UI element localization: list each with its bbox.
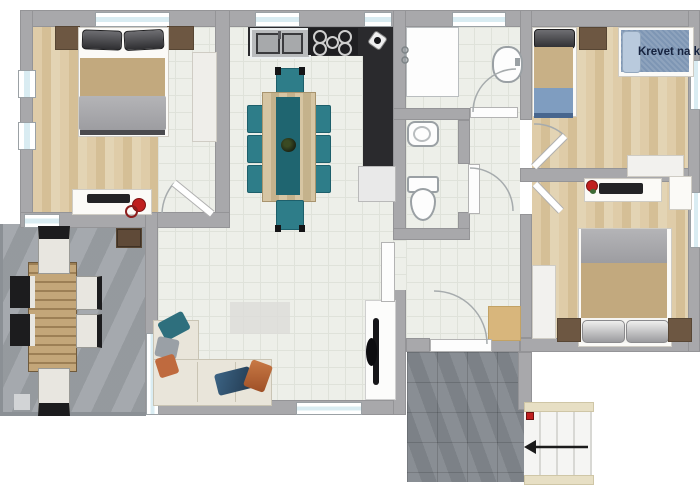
tv-screen-bulge [366,338,377,366]
terrace-chair-bottom [38,368,70,416]
wall-bathroom-bottom [393,108,470,120]
wall-wc-right-upper [458,120,470,164]
headboard-shelf-left [55,26,80,50]
washbasin-faucet [515,58,520,66]
rug [230,302,290,334]
terrace-cabinet [116,228,142,248]
entry-door [430,339,492,352]
living-hall-door [381,242,395,302]
bed3-throw [581,229,667,263]
wardrobe-bedroom1 [192,52,217,142]
fridge-cabinet [358,166,396,202]
wc-door [468,164,480,214]
laptop-bedroom3 [599,183,643,194]
bed1-footboard [80,130,165,135]
window-top-1 [95,12,170,27]
bed3-pillow-left [582,320,625,343]
bidet [407,121,439,147]
window-left-2 [18,122,36,150]
bathroom-door [470,107,518,118]
bed3-pillow-right [626,320,669,343]
closet-bedroom3 [532,265,556,339]
burner-5 [326,36,339,49]
armrest-left [275,67,281,75]
desk-chair-ring [125,205,138,218]
floor-plan-image: Krevet na kat [0,0,700,500]
wall-wc-bottom [393,228,470,240]
window-top-2 [255,12,300,27]
kitchen-sink [250,28,311,59]
terrace-chair-left-1 [10,276,35,308]
stairs [524,402,592,483]
doormat [488,306,521,341]
chair-leg-left [275,225,281,232]
terrace-edge-left [0,224,3,414]
bunk-bed-label: Krevet na kat [638,46,700,61]
bed1-pillow-left [82,29,123,50]
sofa-seat-line [197,362,198,402]
wall-entry-left [406,338,430,352]
plant-centerpiece [281,138,296,152]
nightstand-b3-left [557,318,581,342]
wall-left [20,10,33,228]
bed1-throw [79,96,166,130]
nightstand-b3-right [668,318,692,342]
bed1-blanket [80,58,165,98]
burner-2 [313,42,327,56]
laptop-bedroom1 [87,194,130,203]
bed1-pillow-right [124,29,165,51]
flower-leaf [590,189,596,194]
dining-chair-bottom [276,200,304,230]
burner-4 [338,42,352,56]
bed3-blanket [581,263,667,320]
wall-bedroom1-right [215,10,230,228]
sink-basin-right [282,33,303,54]
dresser-bedroom2 [627,155,684,177]
nightstand-bedroom2 [579,27,607,50]
terrace-tile [14,394,30,410]
stairs-bottom-edge [524,475,594,485]
terrace-chair-right-1 [76,276,102,310]
sink-faucet [278,31,281,39]
terrace-table [28,262,77,372]
entry-floor [407,352,525,482]
wall-hall-right-lower [520,214,532,338]
terrace-chair-left-2 [10,314,35,346]
bidet-bowl [413,126,431,142]
window-top-3 [364,12,392,27]
window-left-1 [18,70,36,98]
stairs-top-edge [524,402,594,412]
single-bed-pillow [534,29,575,49]
smoke-marker [526,412,534,420]
chair-leg-right [299,225,305,232]
single-bed-blanket [534,88,573,118]
window-top-4 [452,12,506,27]
headboard-shelf-right [167,26,194,50]
shower [406,27,459,97]
terrace-chair-top [38,226,70,274]
armrest-right [299,67,305,75]
kettle-lid [373,36,383,46]
terrace-edge-bottom [0,412,146,416]
window-living-bottom [296,402,362,415]
wardrobe-bedroom3 [669,176,692,210]
single-bed-sheet [534,47,573,88]
sink-basin-left [256,33,280,54]
terrace-chair-right-2 [76,314,102,348]
cooktop [308,28,358,55]
